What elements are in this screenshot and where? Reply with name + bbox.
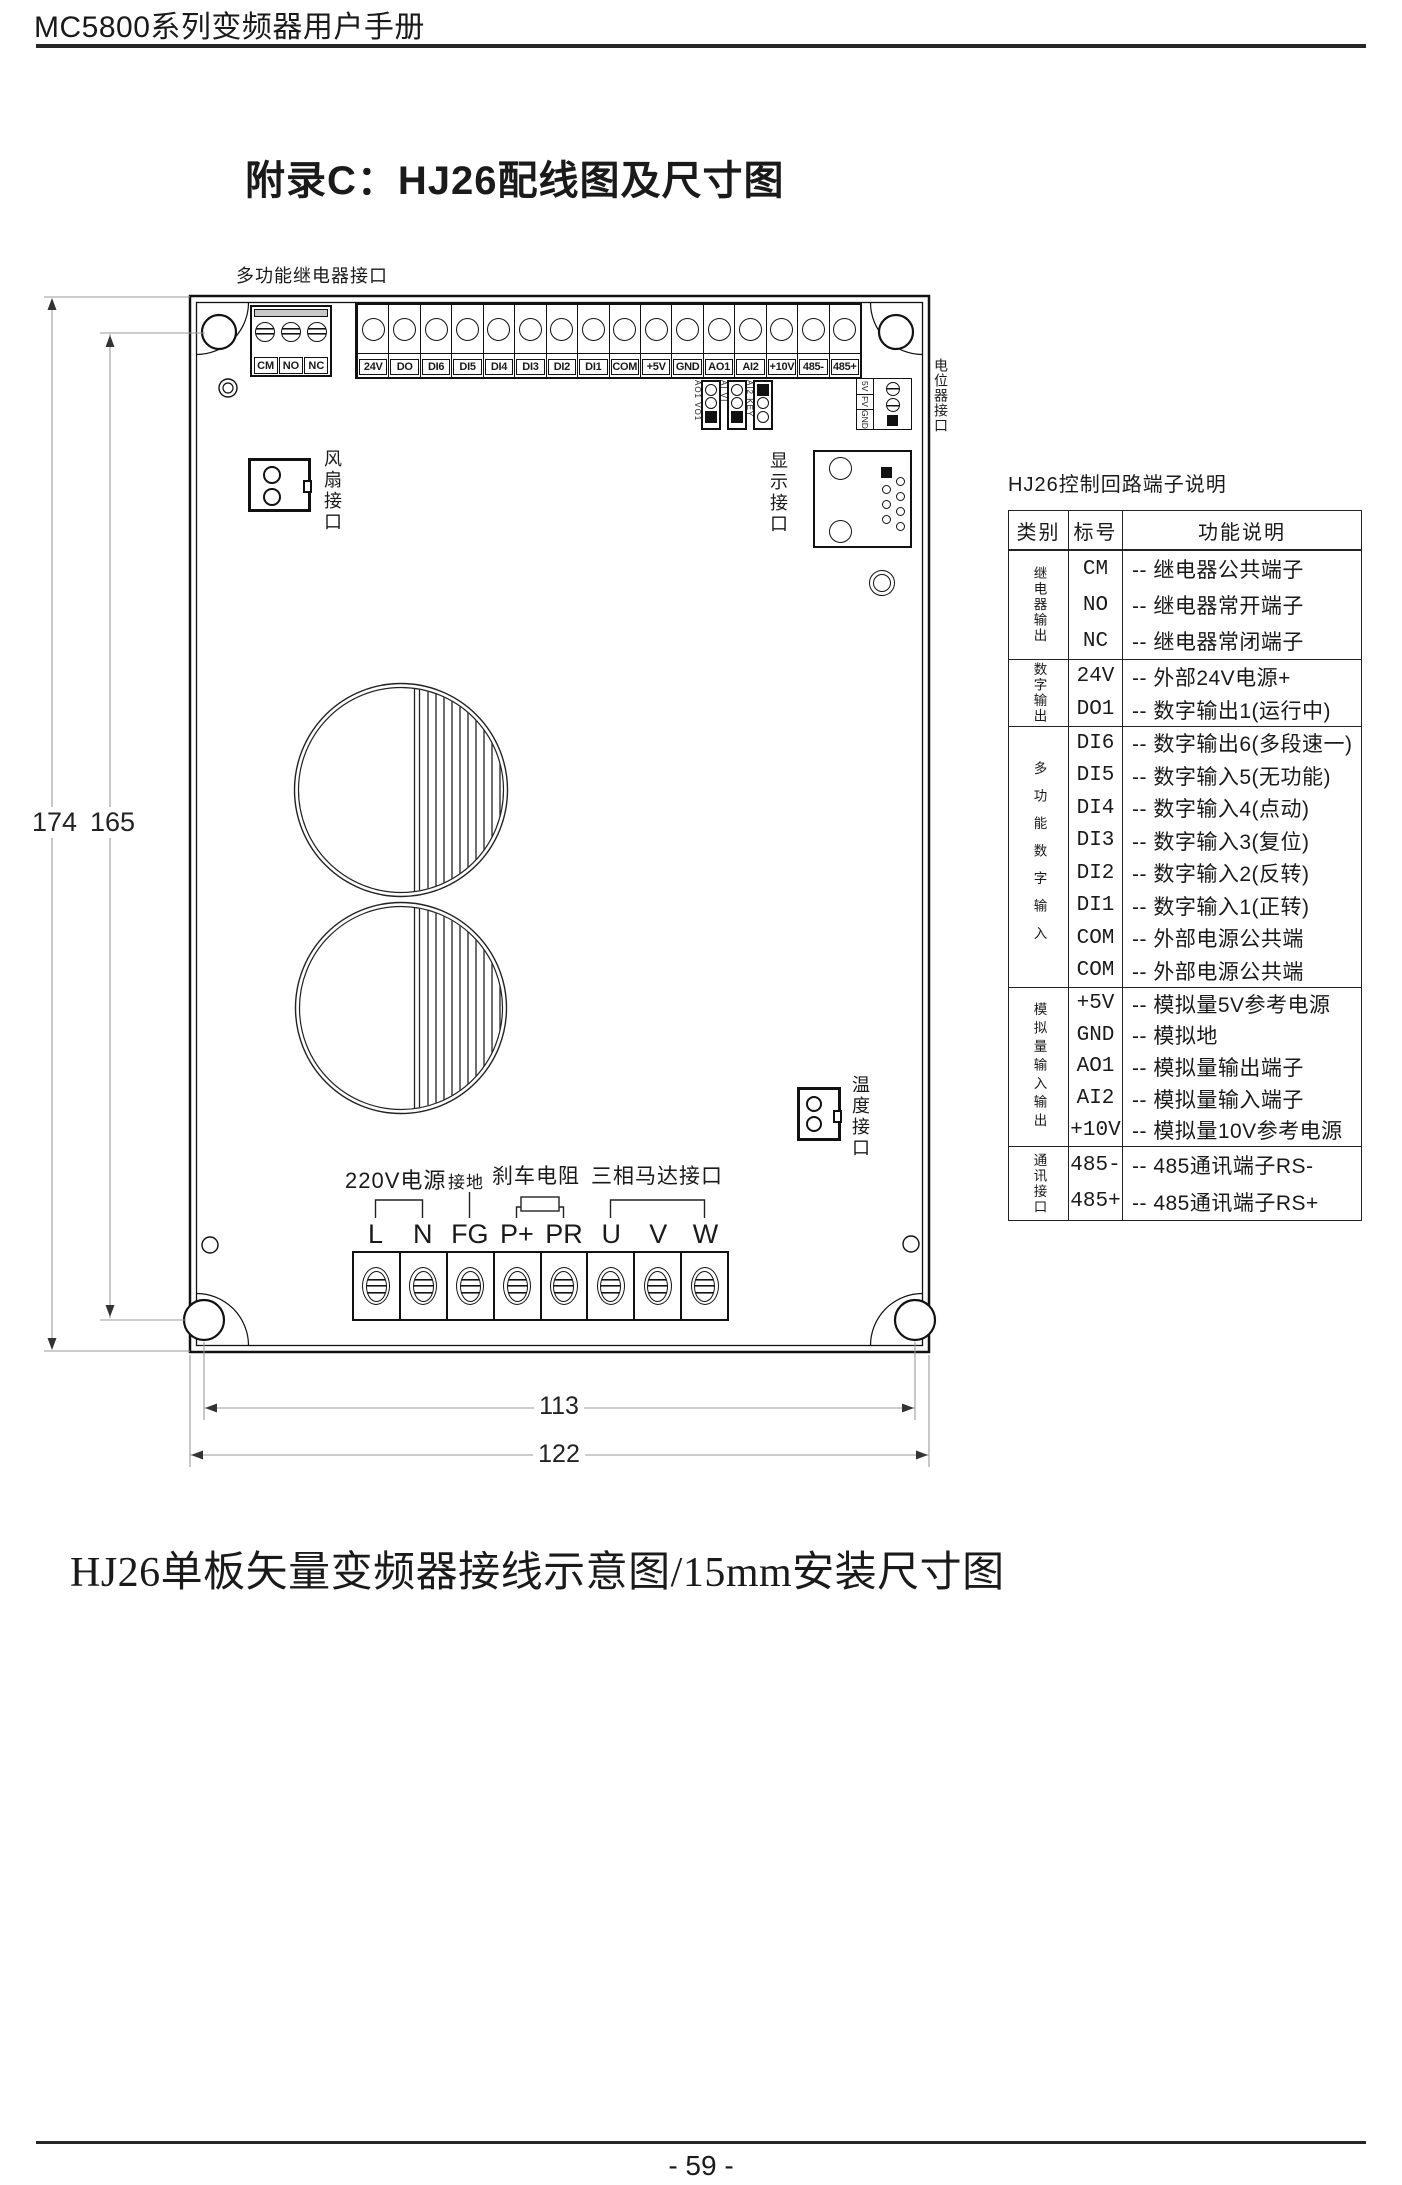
terminal-code: DI4 [1069,792,1123,825]
terminal-hole [645,318,668,341]
brake-group-label: 刹车电阻 [492,1160,580,1190]
terminal-label: COM [611,359,639,375]
footer-rule [36,2141,1366,2144]
supply-group-label: 220V电源 [345,1163,446,1195]
connector-notch [303,480,312,493]
relay-screws [252,322,330,342]
terminal-cell [633,1253,680,1319]
terminal-label: NC [304,357,328,374]
mounting-hole [879,315,913,349]
terminal-label: V [635,1219,682,1250]
pin-hole [896,492,905,501]
terminal-cell: DI2 [546,305,577,377]
relay-clamp-bar [254,309,328,317]
terminal-desc: -- 模拟量输入端子 [1123,1084,1361,1114]
potentiometer-interface-label: 电位器接口 [934,358,948,433]
pin-1-marker [881,467,892,478]
terminal-cell [354,1253,399,1319]
terminal-cell [446,1253,493,1319]
screw-icon [550,1267,578,1305]
dim-height-holes: 165 [85,807,140,838]
table-row: COM-- 外部电源公共端 [1069,955,1361,988]
terminal-label: 485- [799,359,827,375]
terminal-cell: 485- [797,305,828,377]
terminal-hole [582,318,605,341]
pin-hole [896,522,905,531]
terminal-hole [487,318,510,341]
table-row: DI2-- 数字输入2(反转) [1069,857,1361,890]
pot-terminals [874,379,911,429]
terminal-hole [676,318,699,341]
jumper-label: AO1 VO1 [691,380,701,430]
jumper-pin [705,397,717,409]
screw-icon [644,1267,672,1305]
terminal-code: GND [1069,1020,1123,1052]
terminal-desc: -- 数字输入1(正转) [1123,891,1361,921]
terminal-label: AO1 [705,359,733,375]
terminal-cell: AO1 [703,305,734,377]
pin-hole [263,466,281,484]
terminal-cell: DO [388,305,419,377]
relay-interface-label: 多功能继电器接口 [236,262,388,288]
temperature-interface-label: 温度接口 [851,1075,869,1159]
terminal-code: COM [1069,955,1123,988]
pin-hole [896,507,905,516]
terminal-cell: +5V [640,305,671,377]
terminal-label: DI3 [516,359,544,375]
mounting-hole [829,520,852,543]
terminal-label: 485+ [831,359,859,375]
diagram-caption: HJ26单板矢量变频器接线示意图/15mm安装尺寸图 [70,1538,1005,1599]
screw-icon [362,1267,390,1305]
terminal-label: DI5 [453,359,481,375]
terminal-label: +10V [768,359,796,375]
table-group-digital-in: 多功能数字输入 DI6-- 数字输出6(多段速一) DI5-- 数字输入5(无功… [1009,726,1361,987]
terminal-cell: GND [671,305,702,377]
terminal-desc: -- 继电器常开端子 [1123,590,1361,620]
temperature-connector [797,1087,841,1141]
terminal-hole [739,318,762,341]
ring-hole [869,570,895,596]
terminal-label: W [682,1219,729,1250]
terminal-cell: 24V [357,305,388,377]
jumper-pin [731,384,743,396]
terminal-desc: -- 485通讯端子RS+ [1123,1187,1361,1217]
column-header: 功能说明 [1123,511,1361,549]
terminal-desc: -- 外部电源公共端 [1123,956,1361,986]
terminal-desc: -- 数字输入2(反转) [1123,858,1361,888]
terminal-cell: DI4 [483,305,514,377]
terminal-desc: -- 外部电源公共端 [1123,923,1361,953]
terminal-desc: -- 模拟地 [1123,1020,1361,1050]
screw-icon [409,1267,437,1305]
category-cell: 多功能数字输入 [1009,727,1069,987]
terminal-code: DO1 [1069,693,1123,726]
terminal-hole [425,318,448,341]
terminal-label: GND [673,359,701,375]
terminal-desc: -- 继电器常闭端子 [1123,626,1361,656]
terminal-hole [708,318,731,341]
terminal-label: DI1 [579,359,607,375]
terminal-code: NO [1069,587,1123,623]
terminal-desc: -- 数字输出1(运行中) [1123,695,1361,725]
table-group-digital-out: 数字输出 24V-- 外部24V电源+ DO1-- 数字输出1(运行中) [1009,659,1361,726]
terminal-desc: -- 数字输出6(多段速一) [1123,728,1361,758]
table-row: DI3-- 数字输入3(复位) [1069,825,1361,858]
table-row: AO1-- 模拟量输出端子 [1069,1051,1361,1083]
terminal-cell [680,1253,727,1319]
terminal-code: DI1 [1069,890,1123,923]
dim-width-holes: 113 [534,1392,584,1421]
table-group-comm: 通讯接口 485--- 485通讯端子RS- 485+-- 485通讯端子RS+ [1009,1146,1361,1220]
table-row: +10V-- 模拟量10V参考电源 [1069,1114,1361,1146]
terminal-code: 485- [1069,1147,1123,1184]
pin-hole [896,477,905,486]
dim-width-outer: 122 [533,1440,585,1469]
terminal-cell: DI3 [514,305,545,377]
motor-group-label: 三相马达接口 [591,1160,723,1190]
fan-connector [248,458,311,512]
terminal-label: L [352,1219,399,1250]
jumper-cap [705,411,717,423]
pin-hole [882,500,891,509]
terminal-hole [393,318,416,341]
terminal-label: AI2 [736,359,764,375]
screw-icon [886,382,900,396]
mounting-hole [895,1300,935,1340]
terminal-code: 485+ [1069,1184,1123,1221]
jumper-label: AI2 KEY [743,380,753,430]
terminal-label: FG [446,1219,493,1250]
terminal-label: NO [279,357,303,374]
table-row: GND-- 模拟地 [1069,1020,1361,1052]
category-cell: 继电器输出 [1009,551,1069,659]
manual-page: MC5800系列变频器用户手册 附录C：HJ26配线图及尺寸图 [0,0,1402,2185]
terminal-desc: -- 485通讯端子RS- [1123,1150,1361,1180]
terminal-label: U [588,1219,635,1250]
screw-icon [886,398,900,412]
terminal-cell [493,1253,540,1319]
pot-pin-label: FV [857,395,873,411]
terminal-desc: -- 数字输入4(点动) [1123,793,1361,823]
terminal-desc: -- 模拟量输出端子 [1123,1052,1361,1082]
table-row: DI5-- 数字输入5(无功能) [1069,760,1361,793]
brake-resistor-symbol [521,1197,559,1211]
terminal-label: CM [254,357,278,374]
terminal-desc: -- 模拟量10V参考电源 [1123,1115,1361,1145]
table-row: COM-- 外部电源公共端 [1069,922,1361,955]
table-title: HJ26控制回路端子说明 [1008,468,1227,497]
terminal-code: NC [1069,623,1123,659]
terminal-label: DI4 [485,359,513,375]
pin-hole [806,1096,822,1112]
terminal-hole [833,318,856,341]
table-row: DI4-- 数字输入4(点动) [1069,792,1361,825]
terminal-code: +10V [1069,1114,1123,1146]
terminal-cell: AI2 [734,305,765,377]
terminal-desc: -- 模拟量5V参考电源 [1123,989,1361,1019]
category-cell: 数字输出 [1009,660,1069,726]
terminal-label: DO [390,359,418,375]
pot-pin-label: GND [857,410,873,429]
dim-height-outer: 174 [27,807,82,838]
terminal-cell [540,1253,587,1319]
terminal-cell: DI1 [577,305,608,377]
terminal-hole [519,318,542,341]
terminal-table: 类别 标号 功能说明 继电器输出 CM-- 继电器公共端子 NO-- 继电器常开… [1008,510,1362,1221]
display-connector [813,450,912,548]
table-row: 485--- 485通讯端子RS- [1069,1147,1361,1184]
table-header-row: 类别 标号 功能说明 [1009,511,1361,550]
table-row: +5V-- 模拟量5V参考电源 [1069,988,1361,1020]
terminal-label: DI2 [548,359,576,375]
terminal-code: DI5 [1069,760,1123,793]
pin-hole [882,485,891,494]
table-row: AI2-- 模拟量输入端子 [1069,1083,1361,1115]
power-terminal-strip [352,1251,729,1321]
terminal-cell: COM [609,305,640,377]
relay-terminal-block: CM NO NC [250,305,332,377]
terminal-label: +5V [642,359,670,375]
screw-icon [503,1267,531,1305]
column-header: 类别 [1009,511,1069,549]
screw-icon [691,1267,719,1305]
jumper-pin [705,384,717,396]
category-cell: 模拟量输入输出 [1009,988,1069,1146]
screw-icon [255,322,275,342]
jumper-pin [757,411,769,423]
screw-icon [456,1267,484,1305]
pot-pin-label: 5V [857,379,873,395]
terminal-code: DI2 [1069,857,1123,890]
pin-hole [882,515,891,524]
ground-group-label: 接地 [448,1168,484,1193]
terminal-code: CM [1069,551,1123,587]
page-number: - 59 - [0,2150,1402,2182]
terminal-label: PR [541,1219,588,1250]
terminal-code: DI6 [1069,727,1123,760]
table-row: 24V-- 外部24V电源+ [1069,660,1361,693]
terminal-code: +5V [1069,988,1123,1020]
table-row: CM-- 继电器公共端子 [1069,551,1361,587]
terminal-label: DI6 [422,359,450,375]
terminal-desc: -- 数字输入3(复位) [1123,826,1361,856]
relay-terminal-labels: CM NO NC [253,357,329,374]
terminal-hole [802,318,825,341]
screw-icon [281,322,301,342]
mounting-hole [184,1300,224,1340]
terminal-code: COM [1069,922,1123,955]
screw-icon [597,1267,625,1305]
category-cell: 通讯接口 [1009,1147,1069,1220]
jumper-pin [757,397,769,409]
table-group-relay: 继电器输出 CM-- 继电器公共端子 NO-- 继电器常开端子 NC-- 继电器… [1009,550,1361,659]
power-terminal-labels: L N FG P+ PR U V W [352,1219,729,1250]
terminal-desc: -- 外部24V电源+ [1123,662,1361,692]
potentiometer-block: 5V FV GND [856,378,912,430]
terminal-code: AO1 [1069,1051,1123,1083]
jumper-block [753,380,773,430]
pin-hole [263,488,281,506]
table-row: NO-- 继电器常开端子 [1069,587,1361,623]
table-row: DI6-- 数字输出6(多段速一) [1069,727,1361,760]
jumper-cap [757,384,769,396]
table-group-analog: 模拟量输入输出 +5V-- 模拟量5V参考电源 GND-- 模拟地 AO1-- … [1009,987,1361,1146]
table-row: 485+-- 485通讯端子RS+ [1069,1184,1361,1221]
terminal-hole [770,318,793,341]
control-terminal-strip: 24V DO DI6 DI5 DI4 DI3 DI2 DI1 COM +5V G… [355,303,862,379]
terminal-code: DI3 [1069,825,1123,858]
table-row: DO1-- 数字输出1(运行中) [1069,693,1361,726]
terminal-code: AI2 [1069,1083,1123,1115]
terminal-hole [362,318,385,341]
display-interface-label: 显示接口 [769,451,787,535]
pot-jumper-cap [887,415,898,426]
pot-pin-labels: 5V FV GND [857,379,874,429]
table-row: NC-- 继电器常闭端子 [1069,623,1361,659]
terminal-hole [613,318,636,341]
jumper-cap [731,411,743,423]
terminal-cell: DI6 [420,305,451,377]
terminal-cell: +10V [766,305,797,377]
terminal-label: 24V [359,359,387,375]
terminal-hole [456,318,479,341]
table-row: DI1-- 数字输入1(正转) [1069,890,1361,923]
jumper-pin [731,397,743,409]
terminal-label: N [399,1219,446,1250]
connector-notch [833,1110,842,1123]
terminal-cell: DI5 [451,305,482,377]
terminal-code: 24V [1069,660,1123,693]
fan-interface-label: 风扇接口 [323,449,341,533]
terminal-cell [399,1253,446,1319]
mounting-hole [829,457,852,480]
terminal-cell [586,1253,633,1319]
terminal-desc: -- 数字输入5(无功能) [1123,761,1361,791]
jumper-label: AI VI [717,380,727,430]
column-header: 标号 [1069,511,1123,549]
mounting-hole [202,315,236,349]
terminal-cell: 485+ [829,305,860,377]
terminal-hole [550,318,573,341]
terminal-desc: -- 继电器公共端子 [1123,554,1361,584]
pin-hole [806,1116,822,1132]
screw-icon [307,322,327,342]
terminal-label: P+ [493,1219,540,1250]
